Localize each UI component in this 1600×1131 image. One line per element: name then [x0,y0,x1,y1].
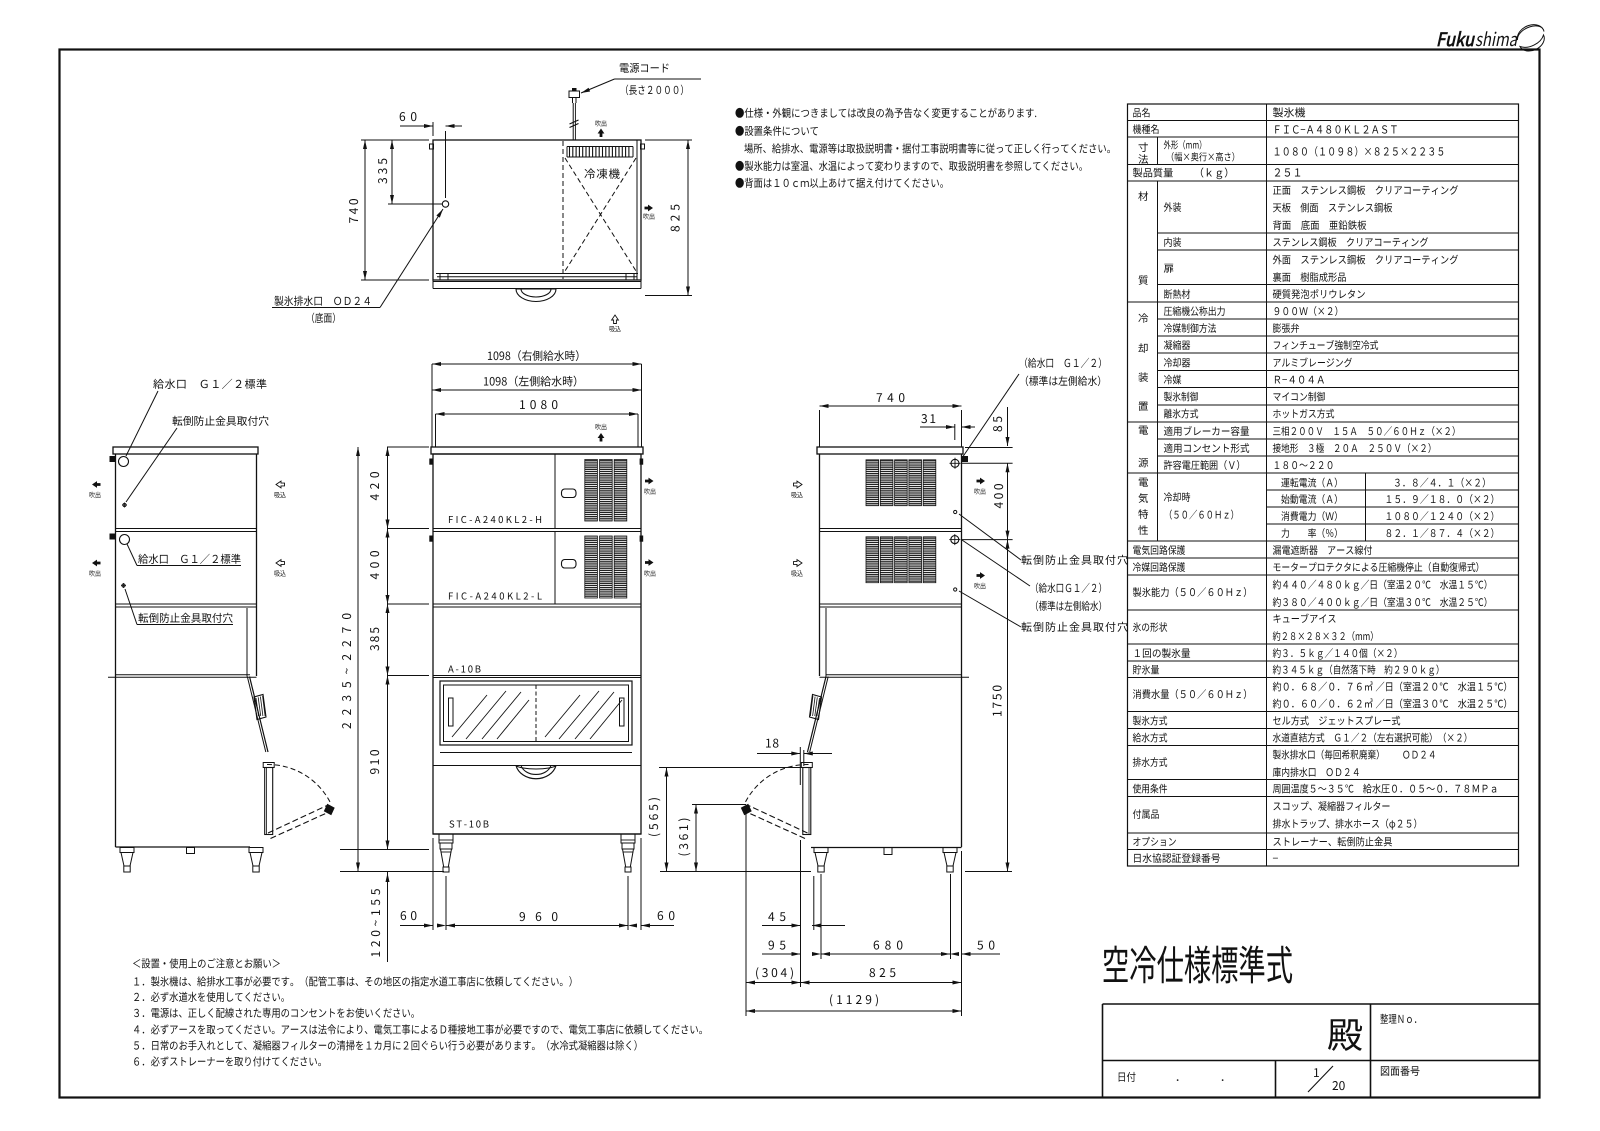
svg-text:（標準は左側給水）: （標準は左側給水） [1019,373,1107,389]
svg-text:吹出: 吹出 [89,491,101,501]
svg-text:吸込: 吸込 [609,325,621,335]
svg-text:オプション: オプション [1133,835,1177,850]
svg-text:転倒防止金具取付穴: 転倒防止金具取付穴 [1021,619,1128,635]
svg-text:転倒防止金具取付穴: 転倒防止金具取付穴 [138,610,233,626]
svg-text:1: 1 [1313,1064,1320,1081]
svg-text:２．必ず水道水を使用してください。: ２．必ず水道水を使用してください。 [132,989,290,1005]
svg-text:（長さ２０００）: （長さ２０００） [620,82,689,98]
svg-text:周囲温度５〜３５℃ 給水圧０．０５〜０．７８ＭＰａ: 周囲温度５〜３５℃ 給水圧０．０５〜０．７８ＭＰａ [1273,782,1499,797]
svg-text:．: ． [1220,1069,1231,1085]
svg-text:85: 85 [989,416,1006,432]
svg-text:製氷機: 製氷機 [1273,105,1306,121]
svg-text:裏面 樹脂成形品: 裏面 樹脂成形品 [1273,270,1347,285]
svg-text:吹出: 吹出 [89,569,101,579]
svg-text:吸込: 吸込 [274,491,286,501]
svg-text:５．日常のお手入れとして、凝縮器フィルターの清掃を１カ月に２: ５．日常のお手入れとして、凝縮器フィルターの清掃を１カ月に２回ぐらい行う必要があ… [132,1038,643,1054]
svg-text:扉: 扉 [1164,261,1175,276]
svg-text:1750: 1750 [989,685,1006,717]
svg-text:１５．９／１８．０（×２）: １５．９／１８．０（×２） [1385,492,1500,507]
svg-text:(565): (565) [645,797,662,837]
svg-text:冷媒: 冷媒 [1164,373,1182,388]
svg-text:膨張弁: 膨張弁 [1273,321,1300,336]
svg-text:凝縮器: 凝縮器 [1164,338,1191,353]
svg-text:60: 60 [399,108,417,125]
svg-text:許容電圧範囲（Ｖ）: 許容電圧範囲（Ｖ） [1164,458,1246,473]
svg-text:冷媒制御方法: 冷媒制御方法 [1164,321,1217,336]
svg-text:電源コード: 電源コード [619,60,670,76]
svg-text:フィンチューブ強制空冷式: フィンチューブ強制空冷式 [1273,338,1379,353]
svg-text:排水トラップ、排水ホース（φ２５）: 排水トラップ、排水ホース（φ２５） [1273,817,1423,832]
svg-text:A-10B: A-10B [448,662,481,676]
svg-text:．: ． [1175,1069,1186,1085]
svg-text:適用コンセント形式: 適用コンセント形式 [1164,441,1250,456]
svg-text:特: 特 [1138,507,1149,522]
svg-text:日水協認証登録番号: 日水協認証登録番号 [1133,851,1221,866]
svg-text:●設置条件について: ●設置条件について [735,123,819,139]
svg-text:セル方式 ジェットスプレー式: セル方式 ジェットスプレー式 [1273,714,1401,729]
svg-text:気: 気 [1138,491,1149,506]
svg-text:385: 385 [366,627,383,651]
svg-text:電気回路保護: 電気回路保護 [1133,543,1186,558]
svg-text:硬質発泡ポリウレタン: 硬質発泡ポリウレタン [1273,287,1366,302]
svg-text:製氷能力（５０／６０Ｈｚ）: 製氷能力（５０／６０Ｈｚ） [1133,585,1253,600]
svg-text:740: 740 [345,198,362,223]
svg-text:材: 材 [1138,189,1149,204]
svg-text:(361): (361) [675,818,692,857]
svg-text:外面 ステンレス鋼板 クリアコーティング: 外面 ステンレス鋼板 クリアコーティング [1273,253,1459,268]
svg-text:400: 400 [990,483,1007,508]
svg-text:転倒防止金具取付穴: 転倒防止金具取付穴 [1021,552,1128,568]
svg-text:電: 電 [1138,423,1149,438]
svg-text:品名: 品名 [1133,106,1151,121]
svg-text:●製氷能力は室温、水温によって変わりますので、取扱説明書を参: ●製氷能力は室温、水温によって変わりますので、取扱説明書を参照してください。 [735,158,1088,174]
svg-text:１回の製氷量: １回の製氷量 [1133,646,1191,661]
svg-text:アルミブレージング: アルミブレージング [1273,356,1353,371]
svg-text:680: 680 [873,937,903,954]
svg-text:400: 400 [366,550,383,579]
svg-text:約３８０／４００ｋｇ／日（室温３０℃ 水温２５℃）: 約３８０／４００ｋｇ／日（室温３０℃ 水温２５℃） [1273,595,1493,610]
svg-text:三相２００Ｖ １５Ａ ５０／６０Ｈｚ（×２）: 三相２００Ｖ １５Ａ ５０／６０Ｈｚ（×２） [1273,424,1461,439]
svg-text:１０８０（１０９８）×８２５×２２３５: １０８０（１０９８）×８２５×２２３５ [1273,144,1446,160]
svg-text:外装: 外装 [1164,200,1182,215]
svg-text:マイコン制御: マイコン制御 [1273,390,1326,405]
svg-text:冷媒回路保護: 冷媒回路保護 [1133,560,1186,575]
svg-text:正面 ステンレス鋼板 クリアコーティング: 正面 ステンレス鋼板 クリアコーティング [1273,183,1459,198]
svg-text:庫内排水口 ＯＤ２４: 庫内排水口 ＯＤ２４ [1273,765,1361,780]
svg-text:吹出: 吹出 [643,212,655,222]
svg-text:スコップ、凝縮器フィルター: スコップ、凝縮器フィルター [1273,799,1391,814]
svg-text:FIC-A240KL2-L: FIC-A240KL2-L [448,589,542,603]
svg-text:約３．５ｋｇ／１４０個（×２）: 約３．５ｋｇ／１４０個（×２） [1273,646,1403,661]
svg-text:背面 底面 亜鉛鉄板: 背面 底面 亜鉛鉄板 [1273,218,1367,233]
svg-text:貯氷量: 貯氷量 [1133,663,1160,678]
svg-text:FIC-A240KL2-H: FIC-A240KL2-H [448,512,542,526]
svg-text:31: 31 [921,410,936,427]
svg-text:製氷排水口 ＯＤ２４: 製氷排水口 ＯＤ２４ [274,293,372,309]
svg-text:圧縮機公称出力: 圧縮機公称出力 [1164,304,1226,319]
svg-text:（標準は左側給水）: （標準は左側給水） [1030,598,1107,614]
svg-text:始動電流（Ａ）: 始動電流（Ａ） [1281,492,1343,507]
svg-text:約３４５ｋｇ（自然落下時 約２９０ｋｇ）: 約３４５ｋｇ（自然落下時 約２９０ｋｇ） [1273,663,1445,678]
svg-text:装: 装 [1138,370,1149,385]
svg-text:ホットガス方式: ホットガス方式 [1273,407,1335,422]
svg-text:1080: 1080 [519,396,558,413]
svg-text:420: 420 [366,471,383,500]
svg-text:性: 性 [1138,523,1149,538]
svg-text:(1129): (1129) [829,991,879,1008]
svg-text:吹出: 吹出 [644,569,656,579]
svg-text:（給水口 Ｇ１／２）: （給水口 Ｇ１／２） [1019,355,1107,371]
svg-text:＜設置・使用上のご注意とお願い＞: ＜設置・使用上のご注意とお願い＞ [132,956,281,972]
svg-text:９００Ｗ（×２）: ９００Ｗ（×２） [1273,304,1344,319]
svg-text:1098（右側給水時）: 1098（右側給水時） [487,348,586,364]
svg-text:（幅×奥行×高さ）: （幅×奥行×高さ） [1166,149,1240,164]
svg-text:転倒防止金具取付穴: 転倒防止金具取付穴 [172,413,269,429]
svg-text:冷却時: 冷却時 [1164,490,1191,505]
svg-text:８２．１／８７．４（×２）: ８２．１／８７．４（×２） [1385,526,1500,541]
svg-text:吹出: 吹出 [595,119,607,129]
svg-text:整理Ｎｏ．: 整理Ｎｏ． [1380,1011,1422,1027]
svg-text:740: 740 [876,389,905,406]
svg-text:50: 50 [977,937,995,954]
svg-text:給水口 Ｇ１／２標準: 給水口 Ｇ１／２標準 [153,376,267,392]
svg-text:（給水口Ｇ１／２）: （給水口Ｇ１／２） [1030,580,1107,596]
svg-text:1098（左側給水時）: 1098（左側給水時） [483,374,584,390]
svg-text:使用条件: 使用条件 [1133,782,1168,797]
svg-text:置: 置 [1138,399,1149,414]
svg-text:殿: 殿 [1327,1007,1363,1059]
svg-text:１．製氷機は、給排水工事が必要です。（配管工事は、その地区の: １．製氷機は、給排水工事が必要です。（配管工事は、その地区の指定水道工事店に依頼… [132,974,578,990]
svg-text:製氷方式: 製氷方式 [1133,714,1168,729]
svg-text:力 率（％）: 力 率（％） [1281,526,1343,541]
svg-text:約２８×２８×３２（mm）: 約２８×２８×３２（mm） [1273,629,1379,644]
svg-text:吹出: 吹出 [974,487,986,497]
svg-text:日付: 日付 [1117,1069,1136,1085]
svg-text:水道直結方式 Ｇ１／２（左右選択可能）（×２）: 水道直結方式 Ｇ１／２（左右選択可能）（×２） [1273,731,1473,746]
svg-text:２５１: ２５１ [1273,165,1303,181]
svg-text:適用ブレーカー容量: 適用ブレーカー容量 [1164,424,1250,439]
svg-text:吸込: 吸込 [274,569,286,579]
svg-text:20: 20 [1332,1077,1346,1094]
svg-text:（底面）: （底面） [306,310,341,326]
svg-text:335: 335 [374,158,391,184]
svg-text:機種名: 機種名 [1133,122,1160,137]
svg-text:製氷制御: 製氷制御 [1164,390,1199,405]
svg-text:(304): (304) [755,964,794,981]
svg-text:ＦＩＣ−Ａ４８０ＫＬ２ＡＳＴ: ＦＩＣ−Ａ４８０ＫＬ２ＡＳＴ [1273,122,1399,138]
svg-text:空冷仕様標準式: 空冷仕様標準式 [1102,932,1293,992]
svg-text:shima: shima [1475,26,1518,52]
svg-text:Fuku: Fuku [1436,26,1476,52]
svg-text:吸込: 吸込 [791,491,803,501]
svg-text:場所、給排水、電源等は取扱説明書・据付工事説明書等に従って正: 場所、給排水、電源等は取扱説明書・据付工事説明書等に従って正しく行ってください。 [744,141,1116,157]
svg-text:ST-10B: ST-10B [449,817,489,831]
svg-text:45: 45 [768,908,786,925]
svg-text:内装: 内装 [1164,235,1182,250]
svg-text:約０．６０／０．６２㎥ ／日（室温３０℃ 水温２５℃）: 約０．６０／０．６２㎥ ／日（室温３０℃ 水温２５℃） [1273,697,1513,712]
svg-text:運転電流（Ａ）: 運転電流（Ａ） [1281,476,1343,491]
svg-text:−: − [1273,851,1279,866]
svg-text:６．必ずストレーナーを取り付けてください。: ６．必ずストレーナーを取り付けてください。 [132,1054,327,1070]
svg-text:図面番号: 図面番号 [1380,1063,1420,1079]
svg-text:ストレーナー、転倒防止金具: ストレーナー、転倒防止金具 [1273,835,1393,850]
svg-text:●背面は１０ｃｍ以上あけて据え付けてください。: ●背面は１０ｃｍ以上あけて据え付けてください。 [735,175,949,191]
svg-text:接地形 ３極 ２０Ａ ２５０Ｖ（×２）: 接地形 ３極 ２０Ａ ２５０Ｖ（×２） [1273,441,1437,456]
svg-text:冷却器: 冷却器 [1164,356,1191,371]
svg-text:１８０〜２２０: １８０〜２２０ [1273,458,1335,473]
svg-text:吸込: 吸込 [791,569,803,579]
svg-text:120~155: 120~155 [367,888,384,957]
svg-text:３．８／４．１（×２）: ３．８／４．１（×２） [1393,476,1491,491]
svg-text:質: 質 [1138,273,1149,288]
svg-text:吹出: 吹出 [974,582,986,592]
svg-text:約０．６８／０．７６㎥ ／日（室温２０℃ 水温１５℃）: 約０．６８／０．７６㎥ ／日（室温２０℃ 水温１５℃） [1273,680,1513,695]
svg-text:１０８０／１２４０（×２）: １０８０／１２４０（×２） [1385,509,1500,524]
svg-text:４．必ずアースを取ってください。アースは法令により、電気工事: ４．必ずアースを取ってください。アースは法令により、電気工事によるＤ種接地工事が… [132,1022,708,1038]
svg-text:825: 825 [667,204,684,232]
svg-text:離氷方式: 離氷方式 [1164,407,1199,422]
svg-text:キューブアイス: キューブアイス [1273,612,1337,627]
svg-text:天板 側面 ステンレス鋼板: 天板 側面 ステンレス鋼板 [1273,201,1393,216]
svg-text:（５０／６０Ｈｚ）: （５０／６０Ｈｚ） [1164,508,1239,523]
svg-text:給水方式: 給水方式 [1133,731,1168,746]
svg-text:モータープロテクタによる圧縮機停止（自動復帰式）: モータープロテクタによる圧縮機停止（自動復帰式） [1273,560,1485,575]
svg-text:源: 源 [1138,456,1149,471]
svg-text:排水方式: 排水方式 [1133,755,1168,770]
svg-text:95: 95 [768,937,786,954]
svg-text:却: 却 [1138,341,1149,356]
svg-text:製品質量 （ｋｇ）: 製品質量 （ｋｇ） [1133,166,1235,181]
svg-text:漏電遮断器 アース線付: 漏電遮断器 アース線付 [1273,543,1373,558]
svg-text:冷凍機: 冷凍機 [584,166,621,182]
svg-text:●仕様・外観につきましては改良の為予告なく変更することがあり: ●仕様・外観につきましては改良の為予告なく変更することがあります. [735,105,1037,121]
svg-text:付属品: 付属品 [1133,807,1160,822]
svg-text:断熱材: 断熱材 [1164,287,1191,302]
svg-text:消費水量（５０／６０Ｈｚ）: 消費水量（５０／６０Ｈｚ） [1133,687,1253,702]
svg-text:60: 60 [400,907,417,924]
svg-text:910: 910 [366,749,383,774]
svg-text:吹出: 吹出 [595,423,607,433]
svg-text:960: 960 [519,908,558,925]
svg-text:18: 18 [765,735,779,752]
svg-text:製氷排水口（毎回希釈廃棄） ＯＤ２４: 製氷排水口（毎回希釈廃棄） ＯＤ２４ [1273,748,1437,763]
svg-text:３．電源は、正しく配線された専用のコンセントをお使いください: ３．電源は、正しく配線された専用のコンセントをお使いください。 [132,1005,420,1021]
svg-text:2235~2270: 2235~2270 [338,613,355,729]
svg-text:電: 電 [1138,475,1149,490]
svg-text:給水口 Ｇ１／２標準: 給水口 Ｇ１／２標準 [138,551,241,567]
svg-text:消費電力（Ｗ）: 消費電力（Ｗ） [1281,509,1343,524]
svg-text:60: 60 [657,907,675,924]
svg-text:Ｒ−４０４Ａ: Ｒ−４０４Ａ [1273,373,1326,388]
svg-text:吹出: 吹出 [644,487,656,497]
svg-text:氷の形状: 氷の形状 [1133,620,1168,635]
svg-text:冷: 冷 [1138,311,1149,326]
svg-text:約４４０／４８０ｋｇ／日（室温２０℃ 水温１５℃）: 約４４０／４８０ｋｇ／日（室温２０℃ 水温１５℃） [1273,578,1493,593]
svg-text:825: 825 [869,964,896,981]
svg-text:ステンレス鋼板 クリアコーティング: ステンレス鋼板 クリアコーティング [1273,235,1429,250]
